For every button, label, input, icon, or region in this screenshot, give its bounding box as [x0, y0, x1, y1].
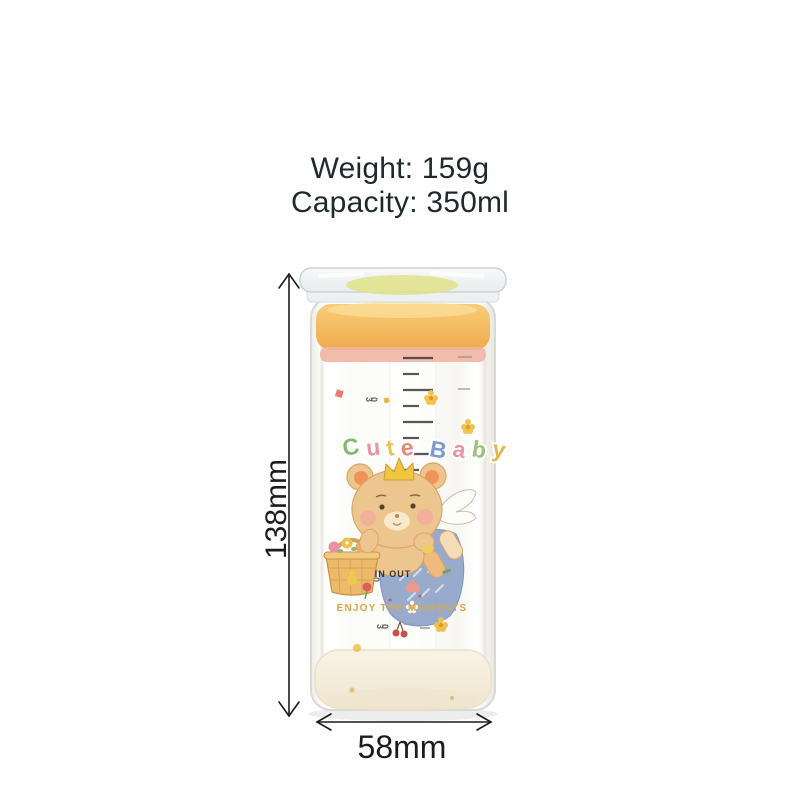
- base-crumb: [350, 688, 355, 693]
- teapot-lid: [411, 579, 415, 583]
- bottle-base: [315, 644, 491, 712]
- bear-eye: [410, 503, 415, 508]
- brand-letter: u: [365, 434, 382, 461]
- slogan-text: ENJOY THE MOMENTS: [337, 603, 468, 614]
- in-out-print: IN OUT: [375, 569, 412, 579]
- seal-highlight: [327, 302, 477, 318]
- seal-ring: [316, 302, 490, 362]
- tulip: [363, 583, 372, 592]
- bear-cheek: [417, 509, 433, 525]
- lid-inner-ring: [346, 275, 458, 295]
- basket-rim: [324, 552, 380, 559]
- brand-letter: b: [470, 435, 488, 463]
- scale-mark: 30: [364, 397, 379, 402]
- yellow-dot: [353, 644, 361, 652]
- gummy-blob: [347, 575, 357, 585]
- product-annotation-canvas: Weight: 159g Capacity: 350ml: [0, 0, 800, 800]
- teapot: [406, 583, 420, 592]
- pink-gasket: [320, 347, 486, 362]
- lid: [300, 268, 506, 302]
- product-photo-bottle: 30 30 30 30 C u t e B a b y: [0, 0, 800, 800]
- glass-highlight-right: [474, 335, 480, 665]
- height-dimension-label: 138mm: [260, 459, 293, 559]
- red-dot: [419, 595, 422, 598]
- base-crumb: [450, 696, 454, 700]
- red-dot: [389, 599, 392, 602]
- gummy-blob: [349, 570, 355, 576]
- brand-letter: y: [491, 435, 508, 463]
- lid-specular: [320, 274, 362, 276]
- glass-highlight-left: [327, 330, 335, 680]
- bear-nose: [395, 514, 399, 518]
- confetti-square: [384, 397, 390, 403]
- brand-letter: e: [399, 434, 414, 461]
- base-shading: [327, 688, 479, 712]
- scale-mark: 30: [375, 624, 390, 629]
- bear-eye: [379, 504, 384, 509]
- width-dimension-label: 58mm: [358, 729, 447, 765]
- brand-letter: a: [451, 435, 468, 463]
- bear-cheek: [360, 510, 376, 526]
